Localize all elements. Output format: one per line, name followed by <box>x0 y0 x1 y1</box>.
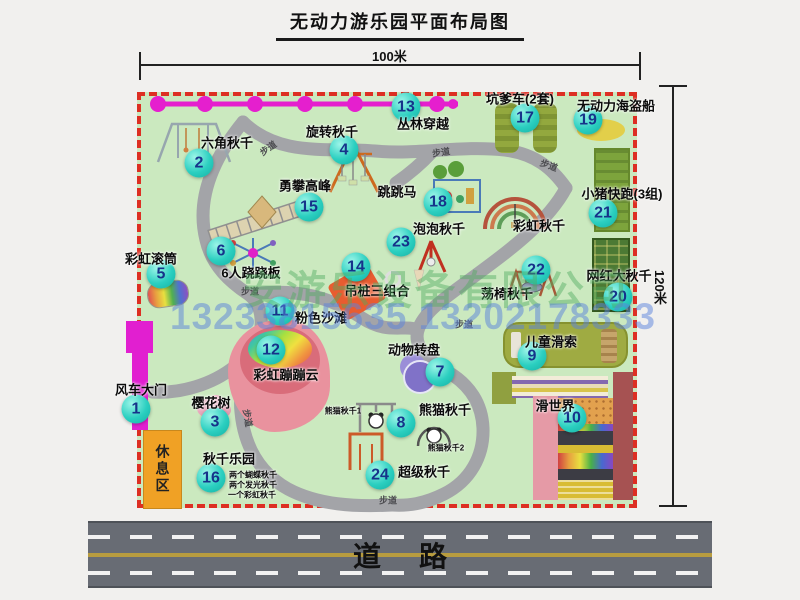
windmill-gate-icon <box>126 321 153 353</box>
big-swing-zone <box>592 238 630 312</box>
slide-red-strip <box>613 372 633 500</box>
zipline-post-icon <box>601 329 617 363</box>
road-label: 道路 <box>315 535 485 575</box>
zipline-platform-icon <box>511 332 521 358</box>
animal-carousel-icon <box>403 360 437 394</box>
slide-world-zone <box>490 370 636 502</box>
slide-band-rainbow-1 <box>558 424 613 431</box>
slide-lanes-icon <box>512 376 608 398</box>
dimension-tick-top-left <box>139 52 141 80</box>
slide-band-rainbow-2 <box>558 453 613 469</box>
rest-area-zone: 休息区 <box>143 430 182 509</box>
slide-band-yellow-2 <box>558 480 613 500</box>
slide-band-yellow-1 <box>558 445 613 453</box>
slide-band-dark-1 <box>558 431 613 445</box>
kids-zipline-zone <box>503 322 628 368</box>
rainbow-cloud-icon <box>248 330 312 368</box>
dimension-width-label: 100米 <box>372 46 407 65</box>
windmill-gate-post <box>132 350 148 430</box>
rest-area-label: 休息区 <box>153 444 173 495</box>
dimension-tick-top-right <box>639 52 641 80</box>
slide-band-orange <box>558 398 613 424</box>
road: 道路 <box>88 521 712 588</box>
dimension-height-label: 120米 <box>650 270 669 305</box>
pit-car-track-2 <box>533 103 557 153</box>
pirate-ship-icon <box>577 119 625 141</box>
slide-band-dark-2 <box>558 469 613 480</box>
dimension-tick-right-bottom <box>659 505 687 507</box>
pit-car-track-1 <box>495 103 519 153</box>
dimension-tick-right-top <box>659 85 687 87</box>
piggy-run-track <box>594 148 630 232</box>
park-layout-page: 无动力游乐园平面布局图 100米 120米 <box>0 0 800 600</box>
page-title: 无动力游乐园平面布局图 <box>276 8 524 41</box>
slide-pink-strip <box>533 396 558 500</box>
dimension-line-right <box>672 86 674 506</box>
